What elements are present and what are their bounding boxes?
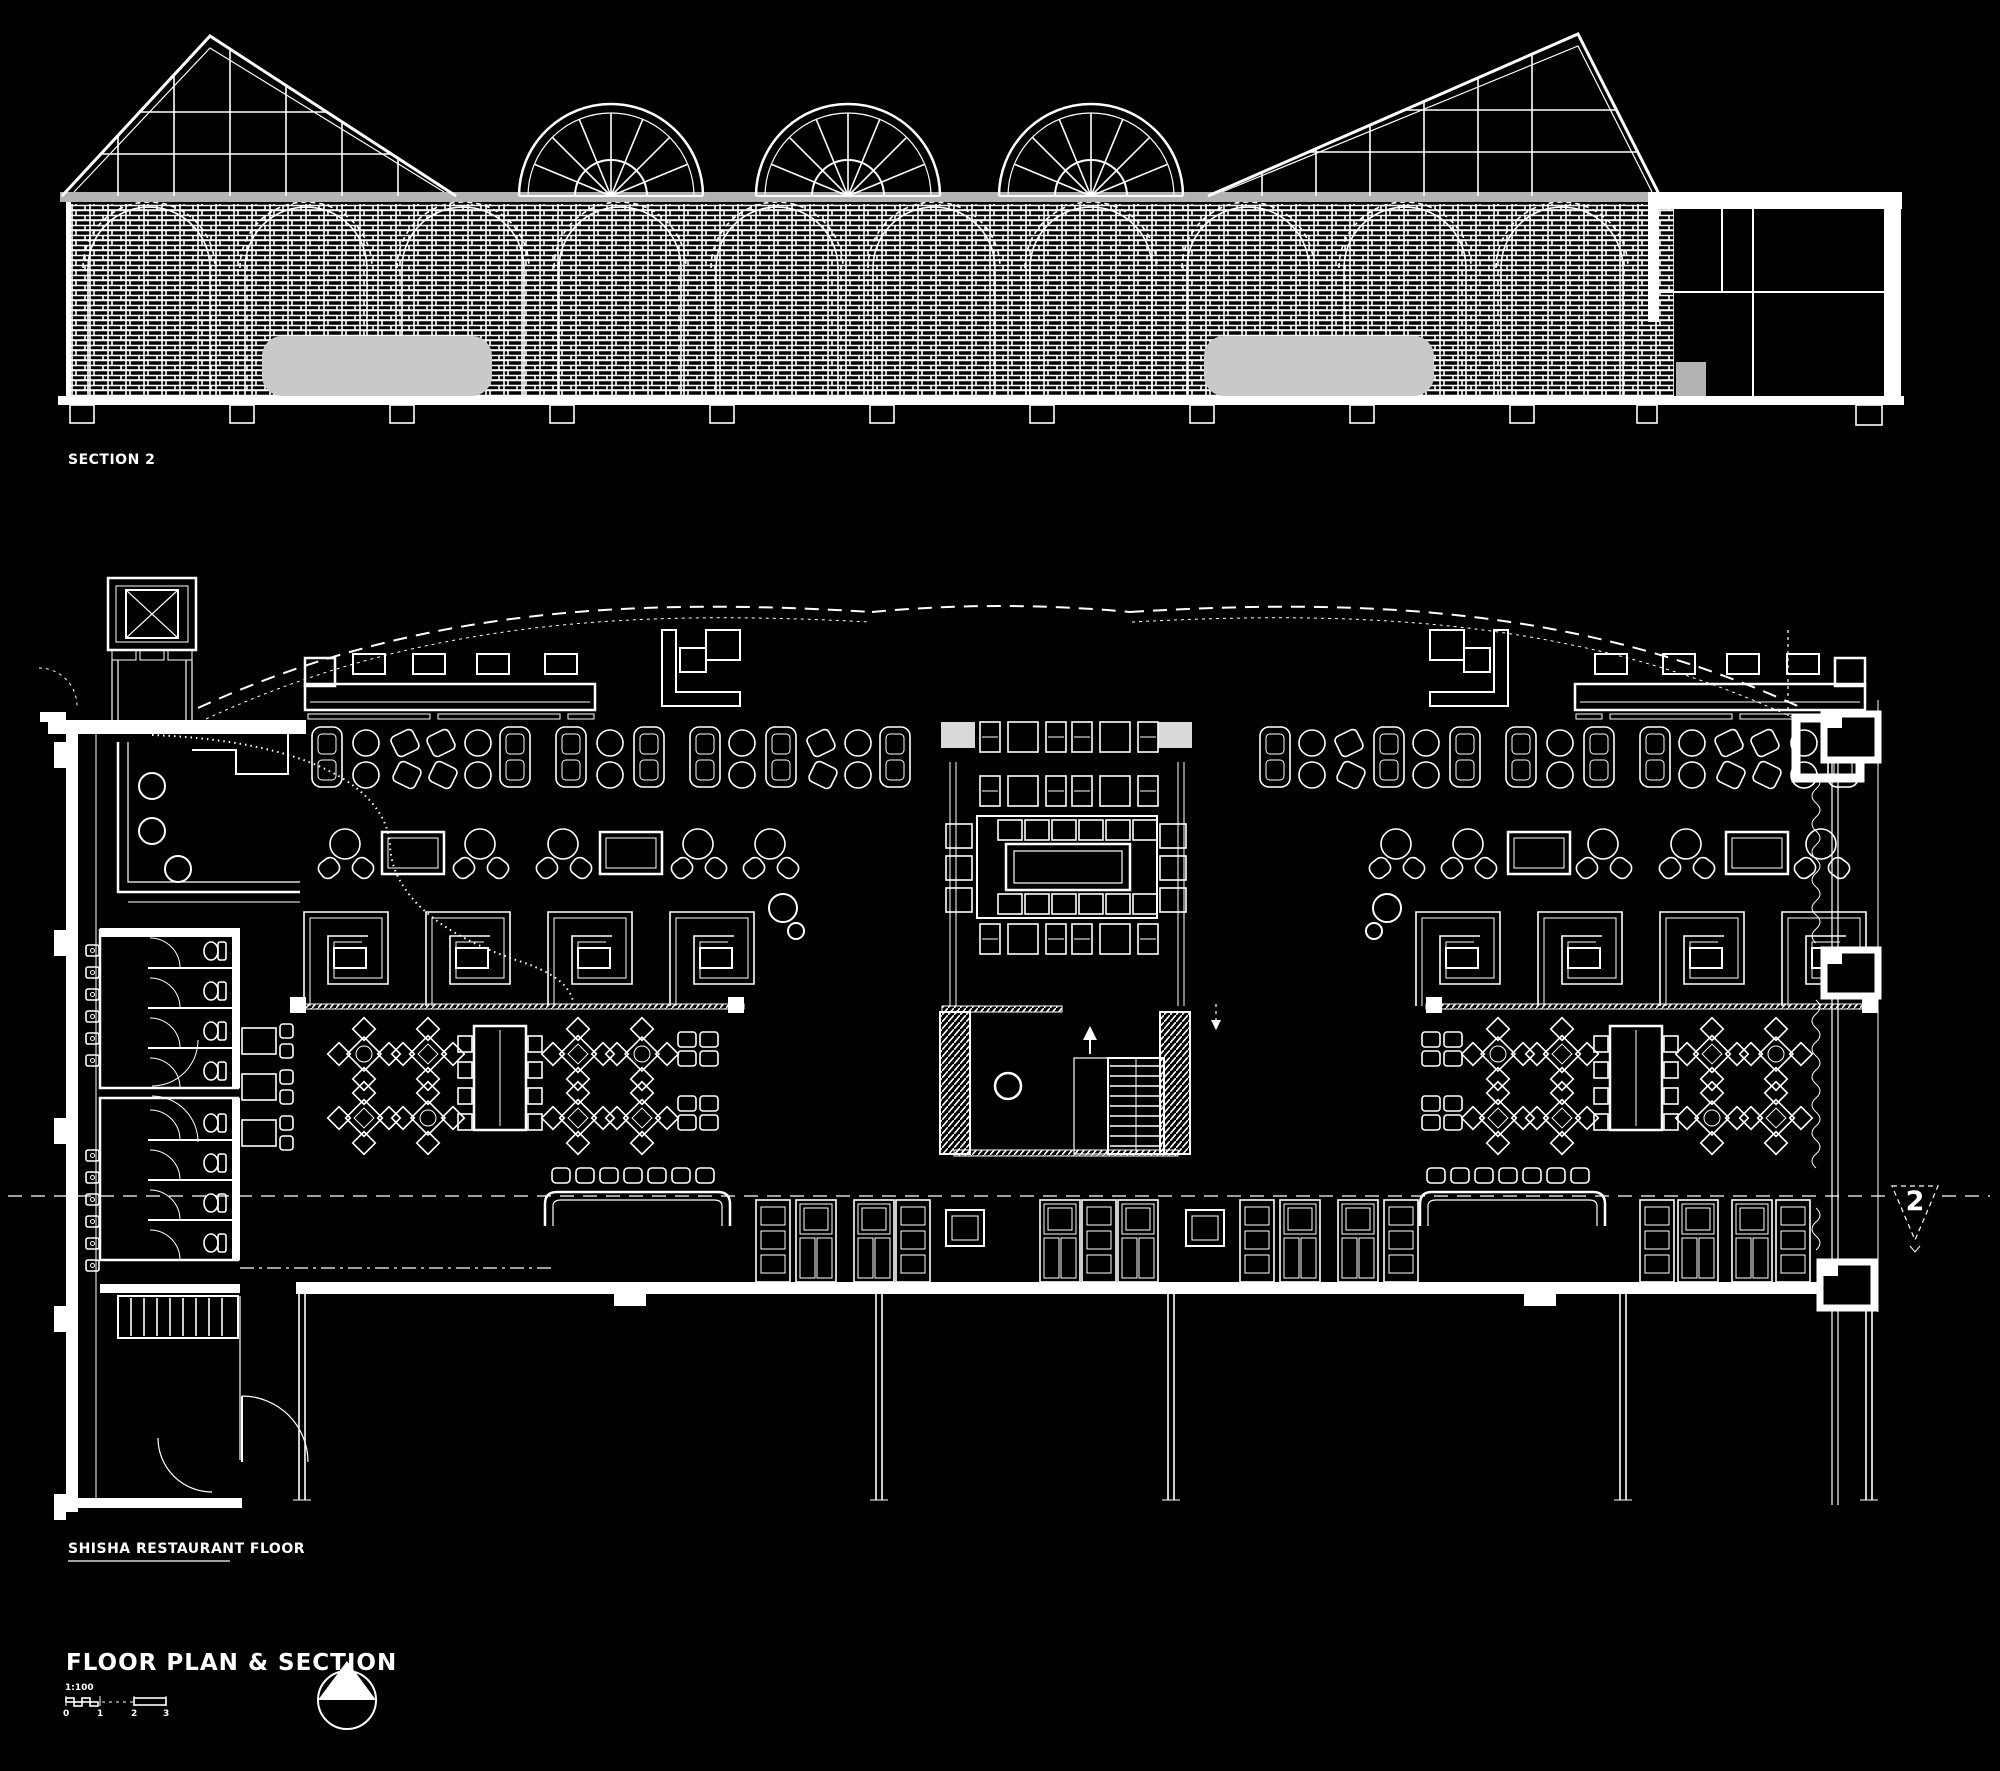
section-cut-line bbox=[8, 1186, 1990, 1252]
section-marker-number: 2 bbox=[1903, 1186, 1927, 1217]
bottom-wall-and-columns bbox=[242, 1282, 1878, 1500]
right-edge bbox=[1812, 700, 1878, 1505]
annex-section bbox=[1648, 192, 1902, 405]
architectural-drawing-sheet: SECTION 2 SHISHA RESTAURANT FLOOR FLOOR … bbox=[0, 0, 2000, 1771]
scale-tick-2: 2 bbox=[131, 1709, 137, 1719]
scale-ratio-label: 1:100 bbox=[65, 1683, 94, 1693]
elevator-tower bbox=[108, 578, 196, 720]
column bbox=[995, 1073, 1021, 1099]
platform-right bbox=[1575, 654, 1865, 719]
section-banquette-right bbox=[1204, 336, 1434, 396]
top-walls bbox=[39, 668, 1878, 748]
wing-stair bbox=[118, 1296, 238, 1338]
sawtooth-roof-left bbox=[60, 20, 456, 196]
bar-counters bbox=[545, 1168, 1605, 1226]
fan-windows bbox=[519, 104, 1183, 196]
section-baseline bbox=[58, 396, 1904, 425]
round-table-band bbox=[316, 829, 1853, 881]
section-label: SECTION 2 bbox=[68, 452, 155, 468]
left-exterior-wall bbox=[54, 720, 96, 1520]
banquet-table bbox=[946, 722, 1186, 1006]
scale-bar bbox=[66, 1696, 166, 1706]
platform-left bbox=[305, 654, 595, 719]
entry-vestibule bbox=[940, 1004, 1221, 1156]
lounge-booth-row bbox=[312, 727, 1858, 790]
section-banquette-left bbox=[262, 336, 492, 396]
door-swing bbox=[242, 1396, 308, 1462]
plan-label: SHISHA RESTAURANT FLOOR bbox=[68, 1541, 305, 1557]
drawing-canvas bbox=[0, 0, 2000, 1771]
floor-plan-drawing bbox=[8, 578, 1990, 1561]
stair bbox=[1074, 1026, 1164, 1154]
section-drawing bbox=[58, 20, 1904, 425]
scale-tick-1: 1 bbox=[97, 1709, 103, 1719]
scale-tick-0: 0 bbox=[63, 1709, 69, 1719]
corner-booth-left bbox=[662, 630, 740, 706]
scale-tick-3: 3 bbox=[163, 1709, 169, 1719]
dining-tables bbox=[242, 1018, 1812, 1155]
sawtooth-roof-right bbox=[1200, 20, 1660, 196]
corner-booth-right bbox=[1430, 630, 1508, 706]
sheet-title: FLOOR PLAN & SECTION bbox=[66, 1650, 397, 1676]
service-equipment bbox=[240, 1200, 1810, 1282]
toilets-wing bbox=[66, 928, 242, 1508]
